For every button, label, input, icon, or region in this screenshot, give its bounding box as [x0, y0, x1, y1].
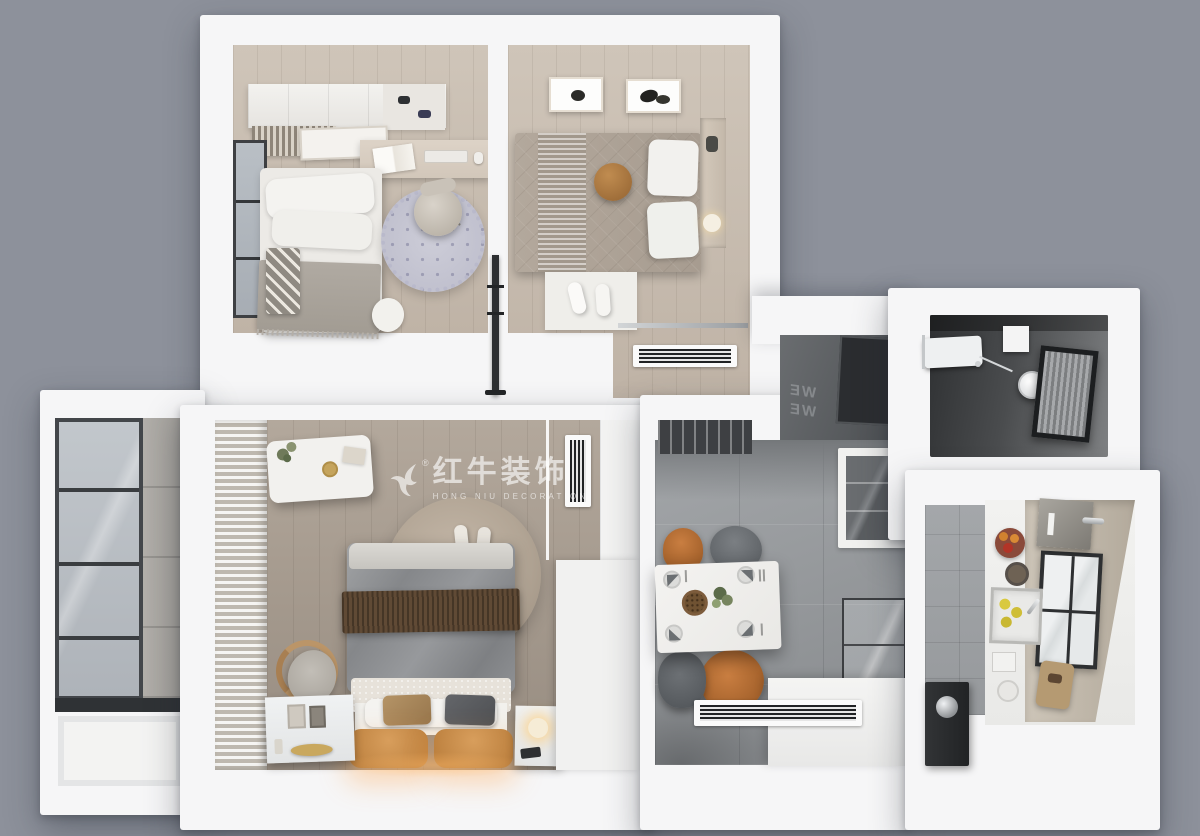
glazing-mullion — [59, 636, 139, 640]
floorplan-render: ® 红牛装饰 HONG NIU DECORATION WE WE — [0, 0, 1200, 836]
partition-shelf — [844, 644, 904, 646]
orange-fruit — [1010, 534, 1019, 543]
artwork-frame — [549, 77, 603, 112]
ac-vent-bedroom — [633, 345, 737, 367]
striped-bed-runner — [538, 133, 586, 272]
diamond-pattern-cushion — [266, 248, 300, 314]
red-fruit — [1003, 543, 1013, 553]
balcony-sill — [55, 698, 185, 712]
glazing-mullion — [59, 562, 139, 566]
floor-lamp-base — [485, 390, 506, 395]
slipper-mat — [545, 272, 637, 330]
floor-lamp-arm — [487, 285, 504, 288]
paper-towel-dispenser — [1036, 498, 1093, 550]
curtained-glass-screen — [1031, 345, 1098, 443]
watermark-brand-en: HONG NIU DECORATION — [433, 492, 589, 501]
chrome-handle — [1082, 517, 1104, 525]
mouse — [474, 152, 483, 164]
orange-fruit — [999, 532, 1008, 541]
display-shelf — [383, 84, 445, 130]
round-brown-cushion — [594, 163, 632, 201]
cutting-board — [1035, 660, 1075, 710]
food-item — [1047, 673, 1062, 684]
floor-lamp-pole — [492, 255, 499, 395]
counter-box — [992, 652, 1016, 672]
registered-mark: ® — [422, 458, 429, 468]
cutlery — [761, 623, 763, 635]
lemon — [1011, 607, 1022, 618]
tan-pillow — [382, 694, 431, 726]
table-lamp — [528, 718, 548, 738]
tall-dark-appliance — [925, 682, 969, 766]
plate — [997, 680, 1019, 702]
plant-centerpiece — [722, 594, 733, 605]
vase — [706, 136, 718, 152]
watermark-brand-cn: 红牛装饰 — [433, 458, 589, 488]
lemon — [1001, 616, 1012, 627]
cutlery — [763, 569, 765, 581]
photo-frame — [287, 704, 306, 729]
bench — [266, 434, 374, 503]
bedside-lamp — [703, 214, 721, 232]
room-shower — [930, 315, 1108, 457]
balcony-glazing — [55, 418, 143, 700]
plant-icon — [283, 454, 292, 463]
underbed-light-glow — [340, 752, 530, 778]
kitchen-window — [1035, 550, 1103, 669]
striped-curtains — [215, 420, 267, 770]
hongniu-bull-logo — [388, 460, 422, 505]
bottle — [274, 739, 283, 754]
gold-tray — [291, 743, 333, 756]
cutlery — [759, 569, 761, 581]
shower-valve — [975, 361, 981, 367]
keyboard — [424, 150, 468, 163]
towel-on-rail — [923, 336, 982, 369]
artwork-blob — [656, 95, 670, 104]
bed-pillow — [647, 139, 699, 197]
kettle — [936, 696, 958, 718]
lemon — [999, 598, 1010, 609]
photo-frame — [309, 705, 326, 728]
towel-rail — [922, 335, 925, 369]
watermark: ® 红牛装饰 HONG NIU DECORATION — [388, 458, 588, 522]
ac-vent-dining — [694, 700, 862, 726]
artwork-blob — [571, 90, 585, 101]
cutlery — [685, 570, 687, 582]
corridor-ceiling-slats — [658, 420, 752, 454]
dark-pillow — [444, 694, 495, 726]
duvet-fold — [349, 543, 513, 569]
shoe-icon — [398, 96, 410, 104]
vent-slats — [700, 705, 856, 721]
dispenser-slot — [1047, 513, 1055, 535]
bedside-niche — [700, 118, 726, 248]
vent-slats — [639, 349, 731, 363]
shower-arm — [979, 356, 1013, 372]
plant-centerpiece — [712, 599, 721, 608]
fruit-bowl — [995, 528, 1025, 558]
shoe-icon — [418, 110, 431, 118]
floor-lamp-arm — [487, 312, 504, 315]
balcony-tile-wall — [143, 418, 185, 700]
office-chair-seat — [414, 188, 462, 236]
wardrobe-lower — [556, 560, 640, 770]
welcome-line: WE — [788, 400, 816, 423]
food-bowl — [681, 589, 708, 616]
wall-corner — [508, 333, 613, 398]
kitchen-sink — [989, 587, 1043, 645]
bed-pillow — [271, 209, 373, 250]
brown-throw — [342, 588, 521, 633]
master-bed — [347, 543, 515, 768]
artwork-frame — [626, 79, 681, 113]
plant-icon — [286, 442, 297, 453]
gold-dish — [322, 461, 339, 478]
welcome-floor-lettering: WE WE — [788, 381, 816, 422]
chrome-strip — [618, 323, 748, 328]
slipper — [595, 284, 611, 317]
dining-table — [655, 561, 782, 653]
ridged-bowl — [1005, 562, 1029, 586]
glazing-mullion — [59, 488, 139, 492]
faucet — [1026, 598, 1040, 615]
book — [342, 446, 366, 465]
balustrade-panel — [58, 716, 182, 786]
wall-box — [1003, 326, 1029, 352]
bed-pillow — [647, 201, 700, 260]
